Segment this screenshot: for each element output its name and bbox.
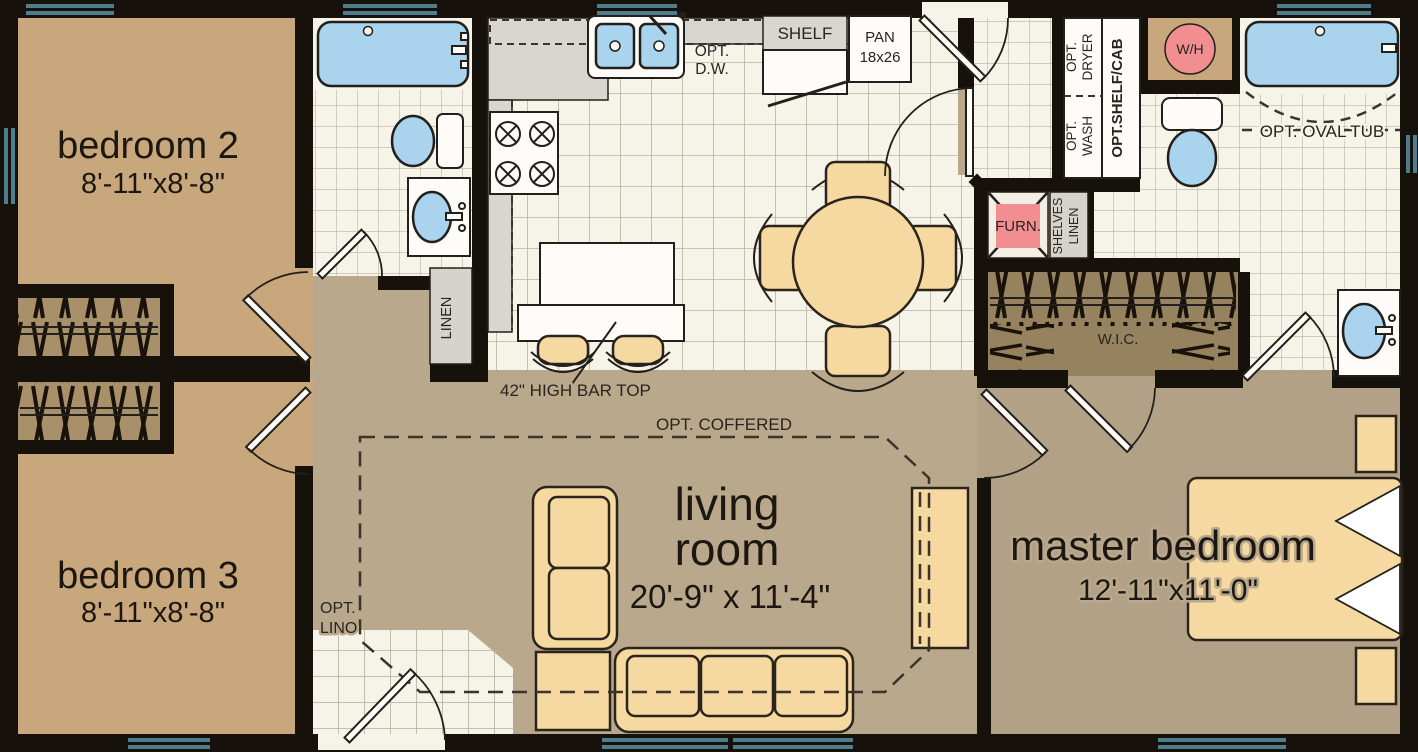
linen-label: LINEN: [439, 297, 455, 340]
master-bedroom-dims: 12'-11"x11'-0": [1078, 574, 1258, 607]
entry-door-opening: [318, 734, 445, 750]
shelf-label: SHELF: [778, 24, 833, 43]
bedroom3-closet: [18, 382, 160, 440]
living-room-name-line2: room: [675, 523, 780, 575]
rear-door-opening: [922, 2, 1008, 18]
floor-plan-canvas: W/H OPT. D.W. SHEL: [0, 0, 1418, 752]
furnace-label: FURN.: [995, 218, 1041, 235]
opt-coffered-label: OPT. COFFERED: [656, 415, 792, 434]
walk-in-closet: [988, 272, 1238, 376]
dining-chair: [826, 326, 890, 376]
nightstand: [1356, 648, 1396, 704]
bedroom2-name: bedroom 2: [57, 125, 239, 167]
living-room-dims: 20'-9" x 11'-4": [630, 578, 831, 615]
dishwasher-label-line2: D.W.: [695, 61, 729, 78]
shelves-linen-closet: SHELVES LINEN: [1050, 192, 1088, 258]
pan-label-line1: PAN: [865, 29, 895, 46]
washer-label-line1: OPT.: [1064, 121, 1079, 151]
stove: [490, 112, 558, 194]
tub-drain-icon: [1316, 27, 1325, 36]
bedroom3-name: bedroom 3: [57, 555, 239, 597]
loveseat: [533, 487, 617, 649]
bar-top-label: 42" HIGH BAR TOP: [500, 381, 651, 400]
entry-floor: [313, 630, 513, 734]
tub-drain-icon: [364, 27, 373, 36]
bedroom2-dims: 8'-11"x8'-8": [81, 168, 225, 200]
bar-island: [518, 243, 684, 341]
opt-lino-label-line1: OPT.: [320, 600, 356, 617]
master-toilet: [1162, 98, 1222, 186]
pan-closet: PAN 18x26: [849, 16, 911, 82]
shelf-cab-label: OPT.SHELF/CAB: [1109, 38, 1126, 157]
toilet: [392, 114, 463, 168]
bedroom3-dims: 8'-11"x8'-8": [81, 597, 225, 629]
pantry: [763, 50, 847, 94]
tub-faucet-icon: [452, 46, 466, 54]
sofa: [615, 648, 853, 732]
bedroom2-closet: [18, 298, 160, 356]
opt-oval-tub-label: OPT. OVAL TUB: [1260, 122, 1384, 141]
linen-closet: LINEN: [430, 268, 472, 364]
opt-lino-label-line2: LINO: [320, 620, 357, 637]
washer-dryer-closet: OPT. DRYER OPT. WASH OPT.SHELF/CAB: [1064, 18, 1140, 178]
shelves-linen-label-line1: SHELVES: [1051, 198, 1065, 255]
water-heater-label: W/H: [1176, 41, 1203, 57]
dryer-label-line2: DRYER: [1080, 33, 1095, 80]
wic-label: W.I.C.: [1098, 331, 1139, 348]
tub-faucet-icon: [1382, 44, 1396, 52]
nightstand: [1356, 416, 1396, 472]
master-sink: [1338, 290, 1400, 376]
dryer-label-line1: OPT.: [1064, 42, 1079, 72]
master-bedroom-name: master bedroom: [1010, 522, 1316, 569]
dining-table: [793, 197, 923, 327]
furnace: FURN.: [988, 192, 1048, 258]
bathroom-sink: [408, 178, 470, 256]
kitchen-sink: [588, 12, 686, 78]
bathtub: [318, 22, 468, 86]
washer-label-line2: WASH: [1080, 116, 1095, 156]
dishwasher-label-line1: OPT.: [695, 43, 729, 60]
utility-hall-floor: [974, 18, 1052, 178]
pan-label-line2: 18x26: [860, 49, 901, 66]
shelves-linen-label-line2: LINEN: [1067, 208, 1081, 245]
floor-plan: W/H OPT. D.W. SHEL: [0, 0, 1418, 752]
